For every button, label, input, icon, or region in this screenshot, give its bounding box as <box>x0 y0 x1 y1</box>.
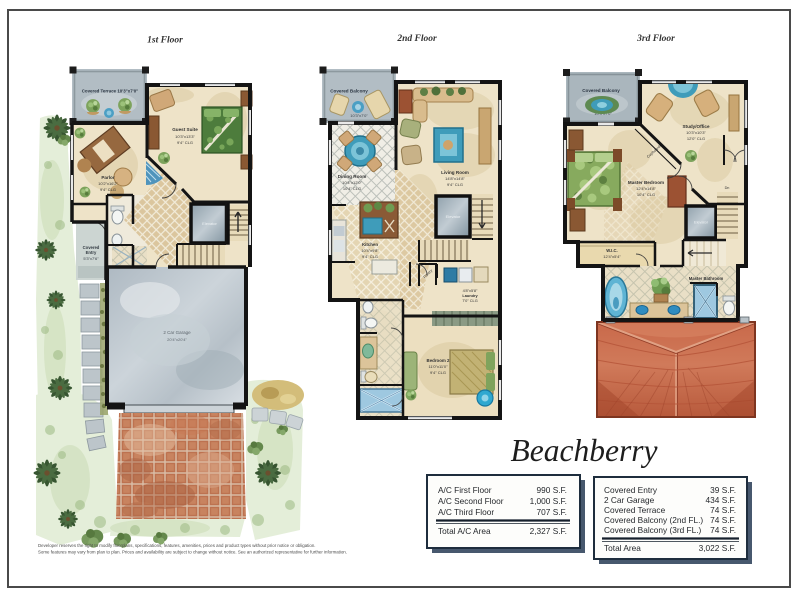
svg-text:9'4" CLG: 9'4" CLG <box>177 140 193 145</box>
svg-text:9'4" CLG: 9'4" CLG <box>430 370 446 375</box>
svg-text:Kitchen: Kitchen <box>362 242 378 247</box>
svg-text:Total A/C Area: Total A/C Area <box>438 526 491 536</box>
svg-text:2 Car Garage: 2 Car Garage <box>163 330 191 335</box>
svg-text:2nd Floor: 2nd Floor <box>396 34 437 44</box>
svg-text:Developer reserves the right t: Developer reserves the right to modify f… <box>38 543 315 548</box>
svg-text:Entry: Entry <box>86 250 97 255</box>
svg-text:20'4"x20'4": 20'4"x20'4" <box>167 337 187 342</box>
svg-text:Bedroom 2: Bedroom 2 <box>427 358 450 363</box>
svg-text:707 S.F.: 707 S.F. <box>537 507 567 517</box>
svg-text:Elevator: Elevator <box>694 221 709 225</box>
svg-text:9'4" CLG: 9'4" CLG <box>362 254 378 259</box>
svg-text:Some features may vary from pl: Some features may vary from plan to plan… <box>38 550 347 555</box>
svg-text:Beachberry: Beachberry <box>511 433 658 468</box>
svg-text:A/C Third Floor: A/C Third Floor <box>438 507 494 517</box>
svg-text:Study/Office: Study/Office <box>682 124 710 129</box>
svg-text:Master Bedroom: Master Bedroom <box>628 180 664 185</box>
svg-text:Covered Terrace: Covered Terrace <box>604 505 666 515</box>
svg-text:1st Floor: 1st Floor <box>147 36 183 46</box>
svg-text:Elevator: Elevator <box>446 214 461 219</box>
svg-text:2,327 S.F.: 2,327 S.F. <box>530 526 567 536</box>
svg-text:14'8"x14'8": 14'8"x14'8" <box>445 176 465 181</box>
svg-text:3rd Floor: 3rd Floor <box>636 34 675 44</box>
svg-text:10'3"x13'3": 10'3"x13'3" <box>175 134 195 139</box>
svg-text:12'4"x14'8": 12'4"x14'8" <box>636 186 656 191</box>
svg-text:10'3"x7'0": 10'3"x7'0" <box>350 113 368 118</box>
svg-text:Covered Balcony (3rd FL.): Covered Balcony (3rd FL.) <box>604 525 702 535</box>
svg-text:Parlor: Parlor <box>101 175 114 180</box>
svg-text:10'4"x12'0": 10'4"x12'0" <box>342 180 362 185</box>
svg-text:74 S.F.: 74 S.F. <box>710 515 736 525</box>
svg-text:Covered Terrace 10'3"x7'0": Covered Terrace 10'3"x7'0" <box>82 89 138 94</box>
svg-text:Dn: Dn <box>725 186 730 190</box>
svg-text:9'4" CLG: 9'4" CLG <box>447 182 463 187</box>
svg-text:7'0" CLG: 7'0" CLG <box>462 298 478 303</box>
svg-text:Covered Balcony: Covered Balcony <box>330 89 368 94</box>
svg-text:74 S.F.: 74 S.F. <box>710 505 736 515</box>
svg-text:10'4" CLG: 10'4" CLG <box>637 192 655 197</box>
svg-text:Total Area: Total Area <box>604 543 641 553</box>
svg-text:74 S.F.: 74 S.F. <box>710 525 736 535</box>
svg-text:10'4"x9'8": 10'4"x9'8" <box>361 248 379 253</box>
svg-text:3,022 S.F.: 3,022 S.F. <box>699 543 736 553</box>
svg-text:9'4" CLG: 9'4" CLG <box>100 187 116 192</box>
svg-text:Living Room: Living Room <box>441 170 469 175</box>
svg-text:Covered Balcony (2nd FL.): Covered Balcony (2nd FL.) <box>604 515 703 525</box>
svg-text:11'0"x11'0": 11'0"x11'0" <box>428 364 448 369</box>
svg-text:5'3"x7'6": 5'3"x7'6" <box>83 256 99 261</box>
svg-text:Dining Room: Dining Room <box>338 174 367 179</box>
svg-text:A/C Second Floor: A/C Second Floor <box>438 496 504 506</box>
svg-text:A/C First Floor: A/C First Floor <box>438 485 492 495</box>
svg-text:39 S.F.: 39 S.F. <box>710 485 736 495</box>
svg-text:1,000 S.F.: 1,000 S.F. <box>530 496 567 506</box>
svg-text:Covered Balcony: Covered Balcony <box>582 88 620 93</box>
svg-text:990 S.F.: 990 S.F. <box>537 485 567 495</box>
svg-text:12'4"x5'4": 12'4"x5'4" <box>603 254 621 259</box>
svg-text:12'0" CLG: 12'0" CLG <box>687 136 705 141</box>
svg-text:Covered Entry: Covered Entry <box>604 485 658 495</box>
svg-text:Guest Suite: Guest Suite <box>172 127 198 132</box>
svg-text:10'3"x10'3": 10'3"x10'3" <box>686 130 706 135</box>
svg-text:W.I.C.: W.I.C. <box>606 248 617 253</box>
svg-text:Elevator: Elevator <box>202 221 217 226</box>
svg-text:10'4" CLG: 10'4" CLG <box>343 186 361 191</box>
svg-text:434 S.F.: 434 S.F. <box>706 495 736 505</box>
svg-text:Master Bathroom: Master Bathroom <box>689 276 724 281</box>
svg-text:2 Car Garage: 2 Car Garage <box>604 495 655 505</box>
svg-text:10'2"x16'2": 10'2"x16'2" <box>98 181 118 186</box>
